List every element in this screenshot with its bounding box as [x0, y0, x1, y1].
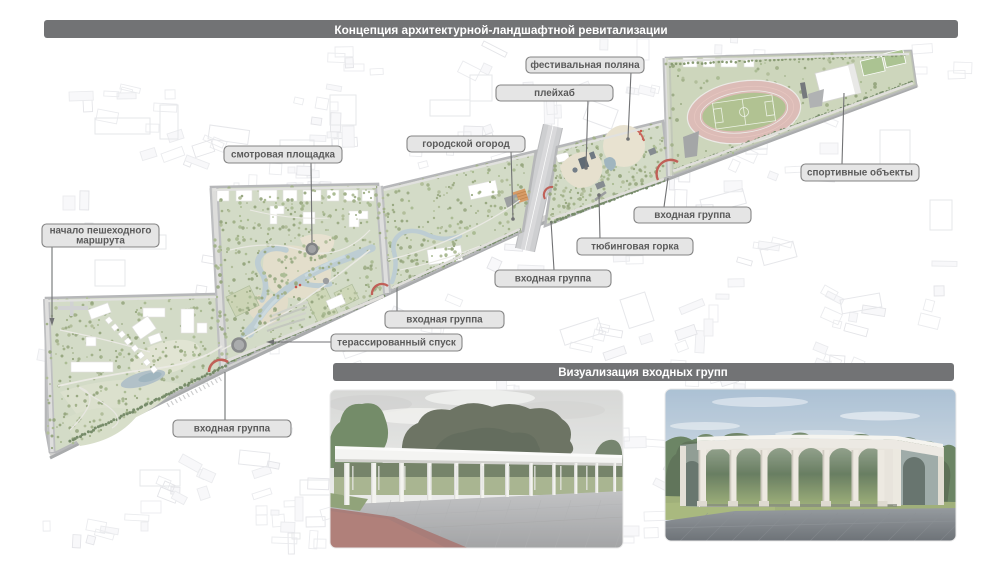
svg-text:Концепция архитектурной-ландша: Концепция архитектурной-ландшафтной реви… [334, 23, 667, 37]
svg-text:плейхаб: плейхаб [534, 88, 575, 99]
svg-text:фестивальная поляна: фестивальная поляна [530, 60, 640, 71]
svg-text:терассированный спуск: терассированный спуск [337, 338, 456, 349]
svg-text:Визуализация входных групп: Визуализация входных групп [558, 367, 728, 379]
svg-text:смотровая площадка: смотровая площадка [231, 150, 336, 161]
svg-text:спортивные объекты: спортивные объекты [807, 168, 913, 179]
svg-text:входная группа: входная группа [515, 274, 592, 285]
svg-text:городской огород: городской огород [422, 139, 510, 150]
svg-text:маршрута: маршрута [76, 236, 125, 247]
svg-text:тюбинговая горка: тюбинговая горка [591, 242, 679, 253]
svg-text:начало пешеходного: начало пешеходного [50, 225, 152, 236]
svg-text:входная группа: входная группа [406, 315, 483, 326]
svg-text:входная группа: входная группа [654, 210, 731, 221]
svg-text:входная группа: входная группа [194, 424, 271, 435]
